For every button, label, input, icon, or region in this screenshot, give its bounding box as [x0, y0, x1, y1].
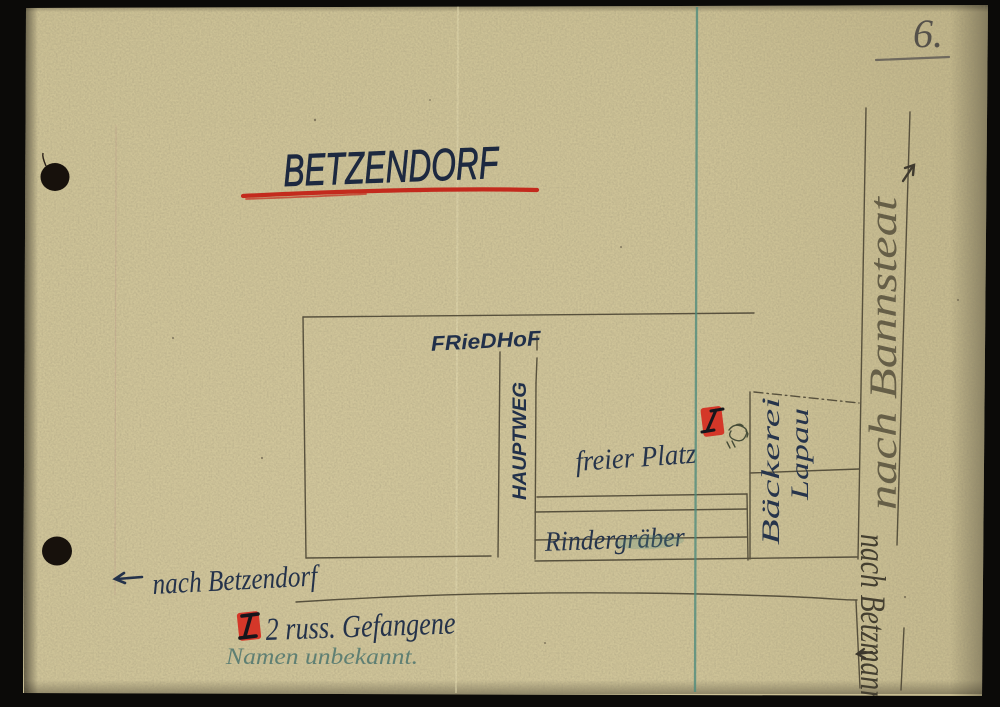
svg-text:nach Bannsteat: nach Bannsteat: [862, 195, 905, 510]
svg-text:Bäckerei: Bäckerei: [758, 397, 785, 545]
svg-text:BETZENDORF: BETZENDORF: [282, 137, 501, 196]
svg-text:nach Betzmann: nach Betzmann: [853, 534, 893, 704]
svg-text:HAUPTWEG: HAUPTWEG: [510, 382, 531, 500]
svg-text:6.: 6.: [913, 11, 943, 56]
svg-text:2 russ. Gefangene: 2 russ. Gefangene: [265, 604, 456, 647]
svg-text:Lapau: Lapau: [787, 408, 814, 501]
svg-text:Namen unbekannt.: Namen unbekannt.: [225, 644, 418, 669]
